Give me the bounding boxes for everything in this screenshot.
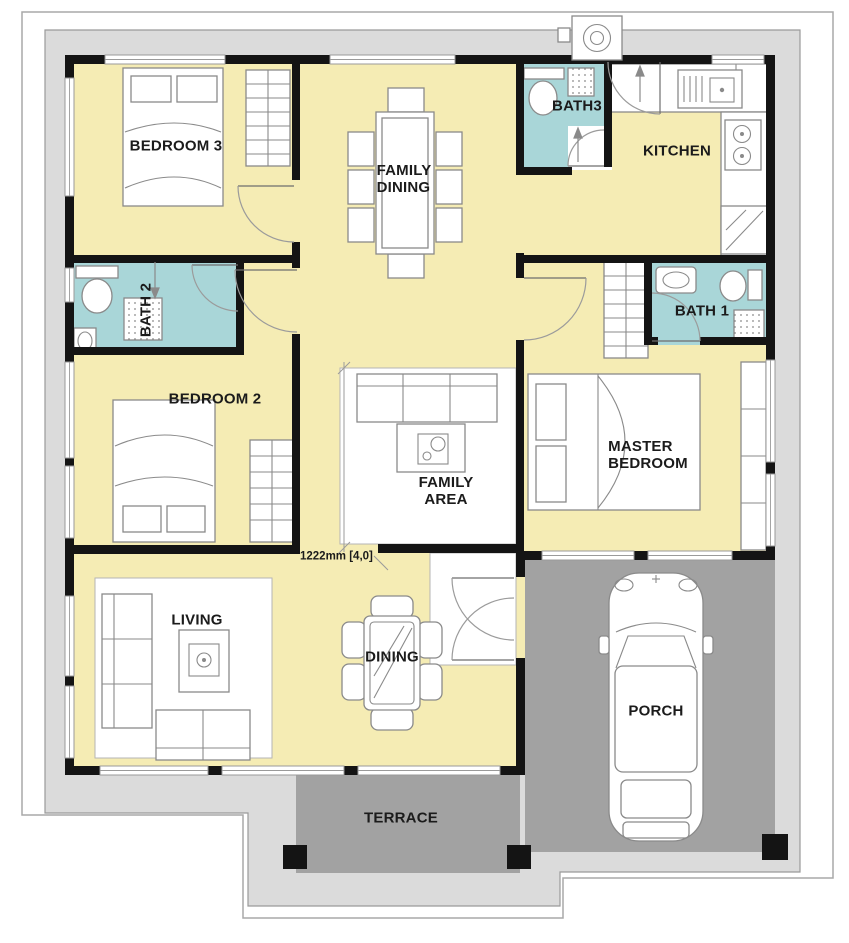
- room-label-bath2: BATH 2: [139, 283, 156, 337]
- sink-icon: [656, 267, 696, 293]
- dimension-label: 1222mm [4,0]: [300, 551, 373, 564]
- label-line: DINING: [377, 179, 431, 196]
- label-line: LIVING: [171, 612, 222, 629]
- label-line: BEDROOM 3: [130, 138, 223, 155]
- floor-plan: BEDROOM 3 FAMILYDINING BATH3 KITCHEN BAT…: [0, 0, 849, 943]
- wardrobe-icon: [246, 70, 290, 166]
- label-line: 1222mm [4,0]: [300, 551, 373, 563]
- room-label-porch: PORCH: [628, 704, 683, 721]
- sofa-icon: [102, 594, 152, 728]
- room-label-bedroom2: BEDROOM 2: [169, 392, 262, 409]
- shower-icon: [568, 68, 594, 96]
- label-line: BATH 1: [675, 303, 729, 320]
- label-line: BEDROOM: [608, 455, 688, 472]
- entry-vestibule-floor: [430, 553, 516, 665]
- room-label-living: LIVING: [171, 613, 222, 630]
- shower-icon: [734, 310, 764, 340]
- label-line: PORCH: [628, 703, 683, 720]
- floor-plan-canvas: [0, 0, 849, 943]
- room-label-family-area: FAMILYAREA: [419, 475, 474, 509]
- label-line: FAMILY: [377, 162, 432, 179]
- coffee-table-icon: [179, 630, 229, 692]
- room-label-master-bedroom: MASTERBEDROOM: [608, 439, 688, 473]
- label-line: FAMILY: [419, 474, 474, 491]
- room-label-family-dining: FAMILYDINING: [377, 163, 432, 197]
- bed-icon: [113, 400, 215, 542]
- room-label-dining: DINING: [365, 650, 419, 667]
- label-line: MASTER: [608, 438, 673, 455]
- kitchen-sink-icon: [678, 64, 742, 108]
- wardrobe-icon: [604, 262, 648, 358]
- label-line: KITCHEN: [643, 143, 711, 160]
- label-line: BATH3: [552, 98, 602, 115]
- label-line: BEDROOM 2: [169, 391, 262, 408]
- room-label-bedroom3: BEDROOM 3: [130, 139, 223, 156]
- sofa-icon: [156, 710, 250, 760]
- label-line: AREA: [424, 491, 467, 508]
- wardrobe-icon: [250, 440, 294, 542]
- coffee-table-icon: [397, 424, 465, 472]
- stove-icon: [725, 120, 761, 170]
- wardrobe-icon: [741, 362, 766, 550]
- room-label-bath3: BATH3: [552, 99, 602, 116]
- sofa-icon: [357, 374, 497, 422]
- label-line: BATH 2: [138, 283, 155, 337]
- fridge-icon: [721, 206, 767, 254]
- room-label-bath1: BATH 1: [675, 304, 729, 321]
- room-label-terrace: TERRACE: [364, 811, 438, 828]
- toilet-icon: [720, 270, 762, 301]
- label-line: DINING: [365, 649, 419, 666]
- room-label-kitchen: KITCHEN: [643, 144, 711, 161]
- label-line: TERRACE: [364, 810, 438, 827]
